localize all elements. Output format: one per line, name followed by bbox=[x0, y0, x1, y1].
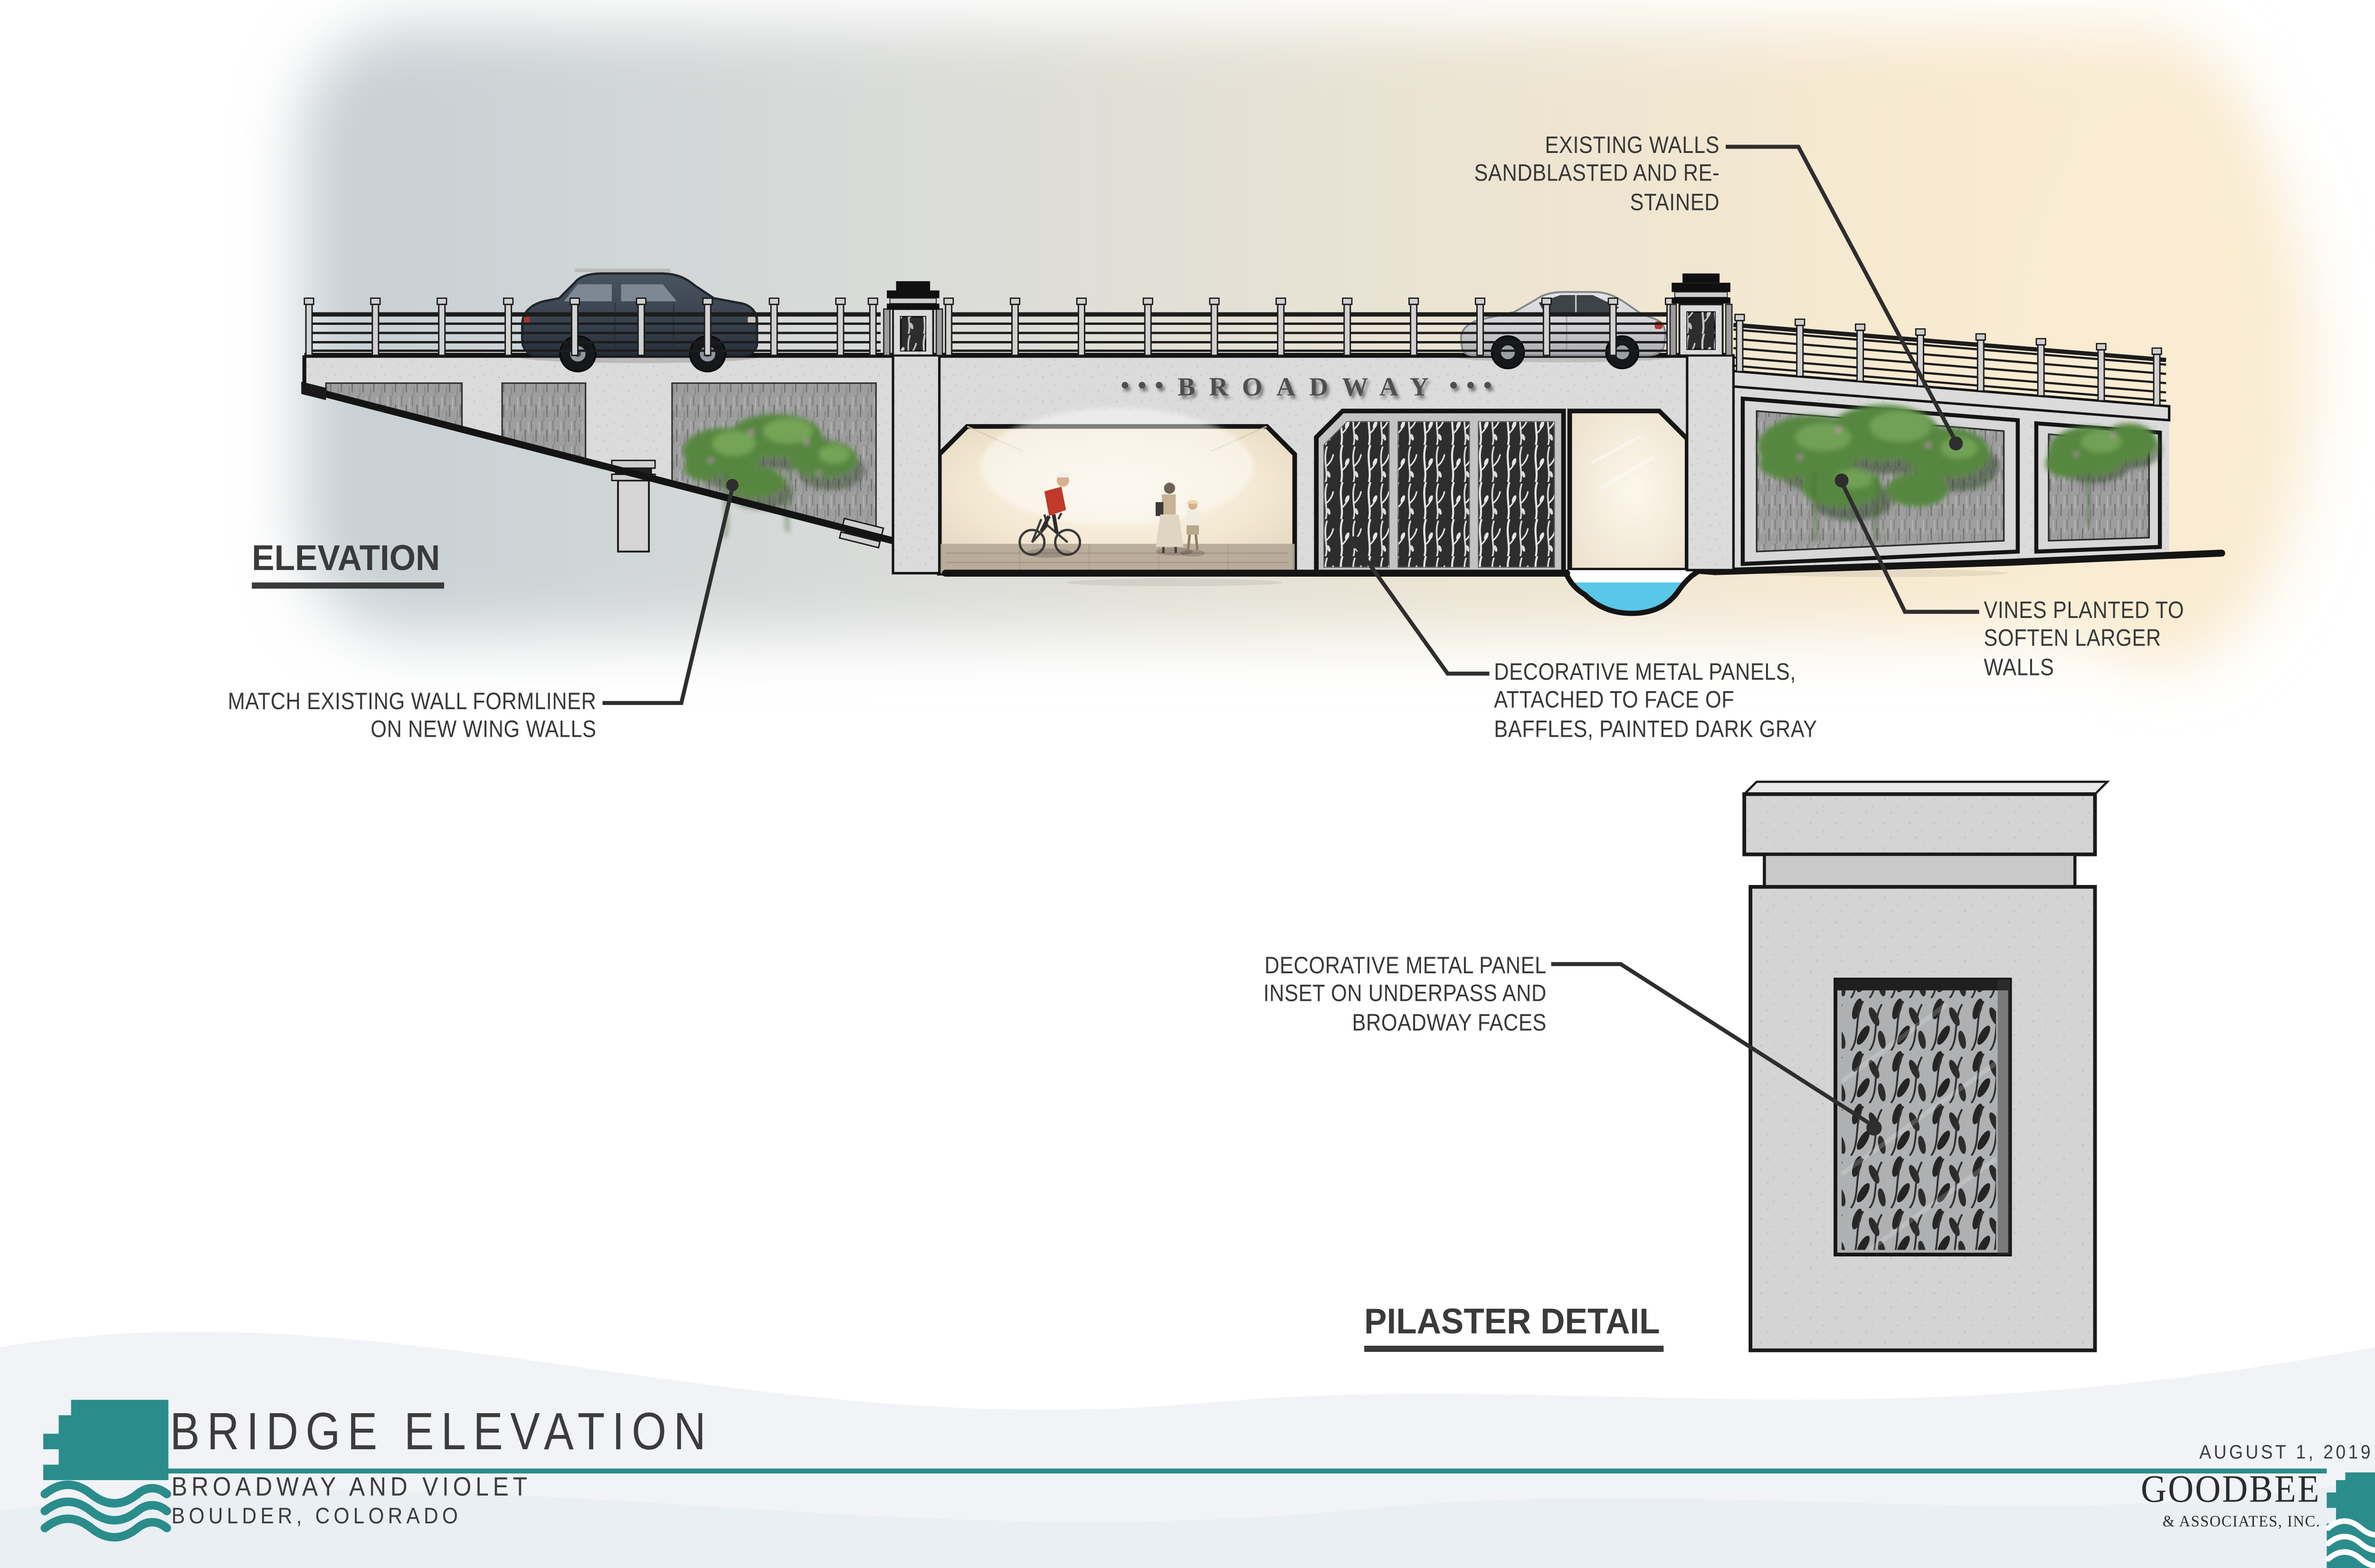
stage: EXISTING WALLS SANDBLASTED AND RE- STAIN… bbox=[0, 0, 2375, 1568]
baffle-panels bbox=[1316, 411, 1563, 573]
sign-dots-right: ●●● bbox=[1449, 377, 1500, 394]
drawing-sheet: EXISTING WALLS SANDBLASTED AND RE- STAIN… bbox=[0, 0, 2375, 1568]
firm-suffix: & ASSOCIATES, INC. bbox=[2009, 1514, 2320, 1533]
project-name: BROADWAY AND VIOLET bbox=[171, 1473, 532, 1502]
pilaster-detail-label: PILASTER DETAIL bbox=[1364, 1261, 1664, 1352]
elevation-view-label: ELEVATION bbox=[252, 497, 444, 589]
creek-opening bbox=[1558, 411, 1706, 617]
annotation-match-formliner: MATCH EXISTING WALL FORMLINER ON NEW WIN… bbox=[198, 689, 596, 746]
pilaster-detail-drawing bbox=[1744, 782, 2107, 1350]
elevation-view-label-text: ELEVATION bbox=[252, 538, 444, 589]
underpass-opening bbox=[940, 408, 1295, 573]
deck-pilaster-left bbox=[883, 281, 942, 573]
sign-dots-left: ●●● bbox=[1120, 377, 1171, 394]
annotation-metal-panels: DECORATIVE METAL PANELS, ATTACHED TO FAC… bbox=[1494, 660, 1892, 745]
firm-name: GOODBEE bbox=[2019, 1469, 2320, 1511]
broadway-sign: ●●● BROADWAY ●●● bbox=[1082, 372, 1539, 403]
annotation-panel-inset: DECORATIVE METAL PANEL INSET ON UNDERPAS… bbox=[1148, 953, 1547, 1039]
annotation-vines: VINES PLANTED TO SOFTEN LARGER WALLS bbox=[1984, 598, 2302, 684]
sign-text: BROADWAY bbox=[1178, 372, 1443, 402]
elevation-artwork bbox=[0, 0, 2375, 1568]
pilaster-detail-label-text: PILASTER DETAIL bbox=[1364, 1301, 1664, 1352]
annotation-existing-walls: EXISTING WALLS SANDBLASTED AND RE- STAIN… bbox=[1321, 133, 1719, 219]
sheet-title: BRIDGE ELEVATION bbox=[170, 1403, 713, 1462]
project-location: BOULDER, COLORADO bbox=[171, 1505, 462, 1531]
sheet-date: AUGUST 1, 2019 bbox=[2089, 1442, 2373, 1465]
